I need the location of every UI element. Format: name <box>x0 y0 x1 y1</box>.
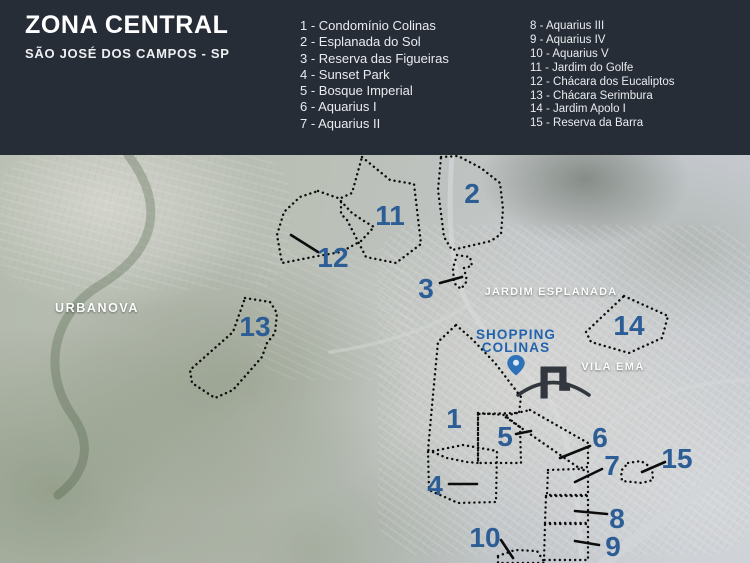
region-outline-8 <box>545 496 588 523</box>
area-label: VILA EMA <box>581 361 644 373</box>
header: ZONA CENTRAL SÃO JOSÉ DOS CAMPOS - SP 1 … <box>0 0 750 155</box>
legend-item: 10 - Aquarius V <box>530 48 674 62</box>
map-number-14: 14 <box>613 310 645 341</box>
west-road <box>330 305 468 352</box>
page-subtitle: SÃO JOSÉ DOS CAMPOS - SP <box>25 46 230 61</box>
map-number-15: 15 <box>661 443 692 474</box>
legend-item: 1 - Condomínio Colinas <box>300 18 449 34</box>
legend-item: 5 - Bosque Imperial <box>300 83 449 99</box>
pointer-line-12 <box>291 235 318 252</box>
map-number-9: 9 <box>605 531 621 562</box>
legend-column-2: 8 - Aquarius III9 - Aquarius IV10 - Aqua… <box>530 20 674 131</box>
legend-item: 3 - Reserva das Figueiras <box>300 51 449 67</box>
poster: ZONA CENTRAL SÃO JOSÉ DOS CAMPOS - SP 1 … <box>0 0 750 563</box>
legend-item: 7 - Aquarius II <box>300 116 449 132</box>
pointer-line-5 <box>516 431 531 434</box>
legend-item: 9 - Aquarius IV <box>530 34 674 48</box>
region-outline-6 <box>504 410 588 468</box>
map-number-7: 7 <box>604 450 620 481</box>
page-title: ZONA CENTRAL <box>25 11 230 40</box>
map-number-13: 13 <box>239 311 270 342</box>
map-number-4: 4 <box>427 470 443 501</box>
legend-item: 15 - Reserva da Barra <box>530 117 674 131</box>
area-label: URBANOVA <box>55 301 139 315</box>
legend-item: 2 - Esplanada do Sol <box>300 34 449 50</box>
map-number-2: 2 <box>464 178 480 209</box>
region-outline-7 <box>547 469 588 495</box>
river-line <box>55 155 151 495</box>
title-block: ZONA CENTRAL SÃO JOSÉ DOS CAMPOS - SP <box>25 11 230 61</box>
legend-item: 11 - Jardim do Golfe <box>530 62 674 76</box>
map-number-12: 12 <box>317 242 348 273</box>
map-overlay-svg: URBANOVAJARDIM ESPLANADAVILA EMASHOPPING… <box>0 155 750 563</box>
map-number-3: 3 <box>418 273 434 304</box>
arch-monument-logo <box>518 367 589 399</box>
legend-item: 8 - Aquarius III <box>530 20 674 34</box>
legend-item: 4 - Sunset Park <box>300 67 449 83</box>
map-number-6: 6 <box>592 422 608 453</box>
pointer-line-6 <box>560 446 590 458</box>
map-number-5: 5 <box>497 421 513 452</box>
region-outline-15 <box>621 461 653 483</box>
legend-item: 14 - Jardim Apolo I <box>530 103 674 117</box>
map: URBANOVAJARDIM ESPLANADAVILA EMASHOPPING… <box>0 155 750 563</box>
legend-item: 12 - Chácara dos Eucaliptos <box>530 76 674 90</box>
region-outline-10 <box>498 550 545 563</box>
legend-column-1: 1 - Condomínio Colinas2 - Esplanada do S… <box>300 18 449 132</box>
map-number-10: 10 <box>469 522 500 553</box>
legend-item: 6 - Aquarius I <box>300 99 449 115</box>
shopping-label-line2: COLINAS <box>482 340 550 355</box>
area-label: JARDIM ESPLANADA <box>485 286 618 298</box>
map-number-8: 8 <box>609 503 625 534</box>
map-number-1: 1 <box>446 403 462 434</box>
legend-item: 13 - Chácara Serimbura <box>530 90 674 104</box>
map-number-11: 11 <box>375 200 405 231</box>
